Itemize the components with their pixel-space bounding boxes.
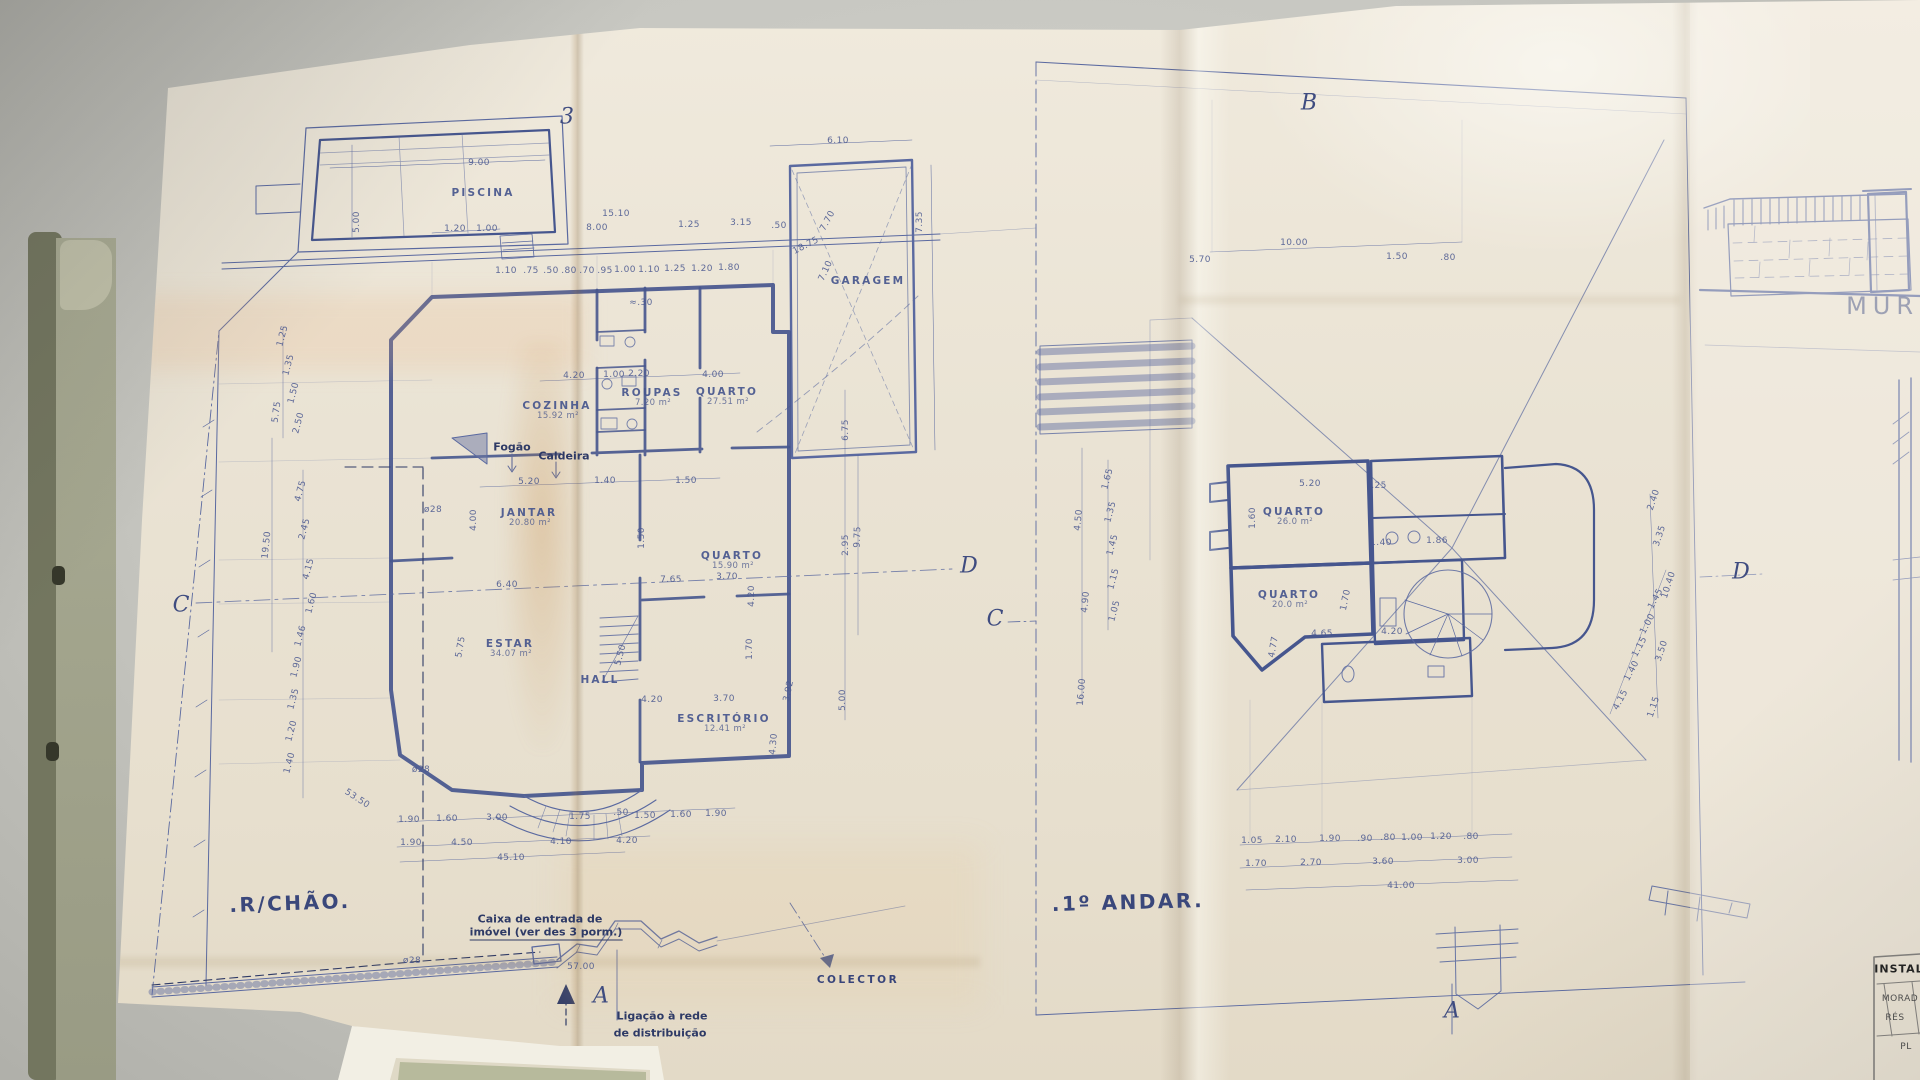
annotation-note: COLECTOR xyxy=(817,974,899,986)
dimension-label: 8.00 xyxy=(586,223,608,233)
dimension-label: 3.00 xyxy=(1457,856,1479,866)
dimension-label: 5.70 xyxy=(1189,255,1211,265)
elevation-label-muro: MURO xyxy=(1846,292,1920,320)
dimension-label: 5.20 xyxy=(1299,479,1321,489)
section-marker-d: D xyxy=(1732,560,1750,585)
dimension-label: .95 xyxy=(597,266,613,276)
title-block-line: MORAD xyxy=(1882,994,1918,1004)
dimension-label: 1.70 xyxy=(1339,588,1353,611)
dimension-label: 1.35 xyxy=(1103,500,1118,523)
dimension-label: 1.40 xyxy=(594,476,616,486)
section-marker-a: A xyxy=(593,984,609,1009)
dimension-label: 2.10 xyxy=(1275,835,1297,845)
dimension-label: 1.90 xyxy=(1319,834,1341,844)
dimension-label: 1.90 xyxy=(705,809,727,819)
annotation-note: imóvel (ver des 3 porm.) xyxy=(470,926,623,941)
dimension-label: 4.30 xyxy=(768,733,780,755)
dimension-label: 1.90 xyxy=(289,655,304,678)
dimension-label: 1.25 xyxy=(275,324,290,347)
dimension-label: 1.20 xyxy=(691,264,713,274)
section-marker-c: C xyxy=(987,607,1004,632)
room-label-garagem: GARAGEM xyxy=(831,275,906,287)
dimension-label: 15.10 xyxy=(602,209,630,219)
section-marker-a: A xyxy=(1444,999,1460,1024)
section-marker-c: C xyxy=(173,593,190,618)
room-area-label: 34.07 m² xyxy=(490,649,532,659)
dimension-label: .50 xyxy=(543,266,559,276)
dimension-label: 1.86 xyxy=(1426,536,1448,546)
dimension-label: .70 xyxy=(579,266,595,276)
dimension-label: 1.20 xyxy=(444,224,466,234)
dimension-label: 2.20 xyxy=(628,369,650,379)
blueprint-sheet: 3 C D A B C D A .R/CHÃO. .1º ANDAR. MURO… xyxy=(0,0,1920,1080)
dimension-label: 4.75 xyxy=(293,479,308,502)
dimension-label: 1.35 xyxy=(281,353,296,376)
section-marker-b: B xyxy=(1301,91,1317,116)
dimension-label: 3.15 xyxy=(730,218,752,228)
dimension-label: 7.70 xyxy=(819,209,838,233)
room-label-piscina: PISCINA xyxy=(451,187,514,199)
dimension-label: 45.10 xyxy=(497,853,525,863)
dimension-label: 1.50 xyxy=(634,811,656,821)
dimension-label: 4.20 xyxy=(747,585,757,607)
dimension-label: 1.60 xyxy=(1248,507,1258,529)
dimension-label: 1.25 xyxy=(664,264,686,274)
dimension-label: .50 xyxy=(613,808,629,818)
dimension-label: 1.50 xyxy=(637,527,647,549)
dimension-label: 3.50 xyxy=(1654,639,1670,663)
dimension-label: 1.10 xyxy=(495,266,517,276)
dimension-label: 4.90 xyxy=(1080,591,1092,613)
folder-edge xyxy=(56,238,116,1080)
room-label-hall: HALL xyxy=(580,674,619,686)
desk-surface: 3 C D A B C D A .R/CHÃO. .1º ANDAR. MURO… xyxy=(0,0,1920,1080)
dimension-label: 3.92 xyxy=(782,679,796,702)
dimension-label: 4.20 xyxy=(616,836,638,846)
dimension-label: 9.00 xyxy=(468,158,490,168)
dimension-label: 7.35 xyxy=(915,211,925,233)
dimension-label: 4.50 xyxy=(1073,509,1085,531)
dimension-label: 3.00 xyxy=(486,813,508,823)
dimension-label: 1.46 xyxy=(293,624,308,647)
dimension-label: .80 xyxy=(1463,832,1479,842)
dimension-label: 3.60 xyxy=(1372,857,1394,867)
dimension-label: 4.15 xyxy=(301,557,316,580)
dimension-label: 1.15 xyxy=(1106,567,1121,590)
dimension-label: 1.50 xyxy=(1386,252,1408,262)
dimension-label: 3.70 xyxy=(713,694,735,704)
dimension-label: 4.20 xyxy=(641,695,663,705)
dimension-label: 1.90 xyxy=(398,815,420,825)
annotation-note: Caldeira xyxy=(538,450,589,463)
annotation-note: Ligação à rede xyxy=(617,1010,708,1023)
annotation-note: ø28 xyxy=(403,956,421,966)
dimension-label: 57.00 xyxy=(567,962,595,972)
dimension-label: .80 xyxy=(561,266,577,276)
dimension-label: 5.75 xyxy=(271,401,284,424)
dimension-label: 1.40 xyxy=(1623,659,1642,683)
section-marker-3: 3 xyxy=(560,105,574,130)
dimension-label: 4.10 xyxy=(550,837,572,847)
dimension-label: 1.50 xyxy=(286,381,301,404)
dimension-label: 1.00 xyxy=(1639,612,1658,636)
labels-layer: 3 C D A B C D A .R/CHÃO. .1º ANDAR. MURO… xyxy=(0,0,1920,1080)
dimension-label: 1.00 xyxy=(614,265,636,275)
dimension-label: 6.75 xyxy=(841,419,851,441)
dimension-label: 1.60 xyxy=(436,814,458,824)
dimension-label: .50 xyxy=(771,221,787,231)
annotation-note: Caixa de entrada de xyxy=(478,913,603,926)
dimension-label: 10.00 xyxy=(1280,238,1308,248)
dimension-label: .80 xyxy=(1380,833,1396,843)
dimension-label: 1.05 xyxy=(1107,599,1122,622)
dimension-label: 5.75 xyxy=(454,635,468,658)
dimension-label: 1.50 xyxy=(675,476,697,486)
dimension-label: 5.50 xyxy=(613,643,628,666)
dimension-label: .80 xyxy=(1440,253,1456,263)
dimension-label: 4.15 xyxy=(1612,688,1631,712)
annotation-note: ø28 xyxy=(412,765,430,775)
dimension-label: 16.00 xyxy=(1076,678,1088,707)
dimension-label: 1.00 xyxy=(1401,833,1423,843)
floor-label-first: .1º ANDAR. xyxy=(1052,888,1205,916)
floor-label-ground: .R/CHÃO. xyxy=(229,889,351,917)
dimension-label: 10.40 xyxy=(1660,570,1678,599)
dimension-label: 1.05 xyxy=(1241,836,1263,846)
dimension-label: 1.20 xyxy=(284,719,299,742)
dimension-label: 1.35 xyxy=(286,687,301,710)
dimension-label: 5.20 xyxy=(518,477,540,487)
dimension-label: 1.45 xyxy=(1105,533,1120,556)
room-area-label: 12.41 m² xyxy=(704,724,746,734)
dimension-label: 1.40 xyxy=(282,751,297,774)
dimension-label: 2.95 xyxy=(841,534,851,556)
dimension-label: 1.15 xyxy=(1631,635,1650,659)
dimension-label: 9.75 xyxy=(853,526,864,548)
dimension-label: 1.15 xyxy=(1646,695,1662,719)
dimension-label: .75 xyxy=(523,266,539,276)
title-block-line: RÉS xyxy=(1885,1013,1904,1023)
dimension-label: 1.70 xyxy=(745,638,755,660)
title-block-line: PL xyxy=(1900,1042,1911,1052)
dimension-label: 2.50 xyxy=(291,411,306,434)
room-area-label: 15.90 m² xyxy=(712,561,754,571)
annotation-note: de distribuição xyxy=(614,1027,707,1040)
dimension-label: 53.50 xyxy=(343,787,372,811)
room-area-label: 26.0 m² xyxy=(1277,517,1313,527)
dimension-label: .25 xyxy=(1371,481,1387,491)
room-area-label: 20.0 m² xyxy=(1272,600,1308,610)
dimension-label: 1.60 xyxy=(304,591,319,614)
dimension-label: 5.00 xyxy=(838,689,848,711)
dimension-label: 3.70 xyxy=(716,572,738,582)
dimension-label: .90 xyxy=(1357,834,1373,844)
dimension-label: 7.65 xyxy=(660,575,682,585)
annotation-note: Fogão xyxy=(493,441,530,454)
dimension-label: 1.70 xyxy=(1245,859,1267,869)
dimension-label: 1.00 xyxy=(476,224,498,234)
dimension-label: 1.65 xyxy=(1100,467,1115,490)
title-block-line: INSTAL xyxy=(1874,963,1920,976)
dimension-label: 19.50 xyxy=(261,531,274,560)
dimension-label: 6.10 xyxy=(827,136,849,146)
dimension-label: 4.50 xyxy=(451,838,473,848)
folder-corner xyxy=(60,240,112,310)
dimension-label: 4.00 xyxy=(702,370,724,380)
dimension-label: 6.40 xyxy=(496,580,518,590)
dimension-label: 4.20 xyxy=(563,371,585,381)
dimension-label: 4.77 xyxy=(1267,635,1281,658)
dimension-label: 1.75 xyxy=(569,812,591,822)
dimension-label: 1.00 xyxy=(603,370,625,380)
dimension-label: 1.60 xyxy=(670,810,692,820)
dimension-label: 1.10 xyxy=(638,265,660,275)
room-area-label: 27.51 m² xyxy=(707,397,749,407)
dimension-label: 4.65 xyxy=(1311,629,1333,639)
section-marker-d: D xyxy=(960,554,978,579)
dimension-label: 18.75 xyxy=(791,235,820,257)
dimension-label: 2.70 xyxy=(1300,858,1322,868)
dimension-label: 1.90 xyxy=(400,838,422,848)
binder-hole xyxy=(46,742,59,761)
dimension-label: 2.40 xyxy=(1646,488,1662,512)
dimension-label: ≈.30 xyxy=(629,298,652,308)
dimension-label: 1.20 xyxy=(1430,832,1452,842)
annotation-note: ø28 xyxy=(424,505,442,515)
dimension-label: 4.20 xyxy=(1381,627,1403,637)
dimension-label: 1.40 xyxy=(1370,538,1392,548)
binder-hole xyxy=(52,566,65,585)
dimension-label: 1.80 xyxy=(718,263,740,273)
dimension-label: 2.45 xyxy=(297,517,312,540)
dimension-label: 4.00 xyxy=(469,509,479,531)
dimension-label: 5.00 xyxy=(352,211,362,233)
room-area-label: 15.92 m² xyxy=(537,411,579,421)
dimension-label: 3.35 xyxy=(1652,524,1668,548)
room-area-label: 20.80 m² xyxy=(509,518,551,528)
room-area-label: 7.20 m² xyxy=(635,398,671,408)
dimension-label: 1.25 xyxy=(678,220,700,230)
dimension-label: 41.00 xyxy=(1387,881,1415,891)
